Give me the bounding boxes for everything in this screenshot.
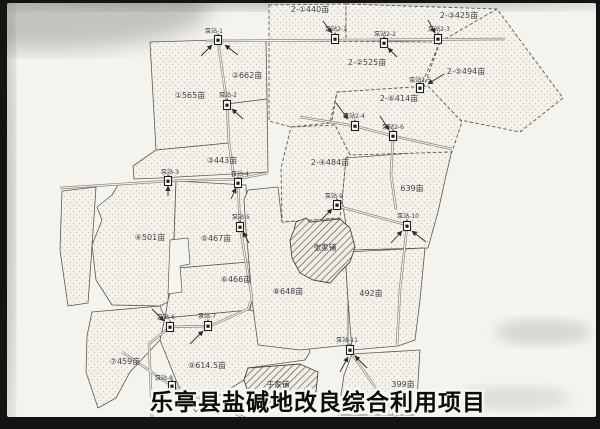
pump-station-icon: [404, 220, 411, 231]
village-label: 张家铺: [314, 242, 337, 252]
pump-station-icon: [205, 320, 212, 331]
parcel-label: ⑥466亩: [221, 274, 251, 284]
scanned-map-page: 泵站-1 泵站-2 泵站-3 泵站-4 泵站-5 泵站-6 泵站-7 泵站-8 …: [0, 0, 600, 429]
pump-label: 泵站2-5: [409, 76, 431, 84]
pump-station-icon: [334, 199, 341, 210]
pump-label: 泵站-2: [219, 91, 237, 99]
pump-label: 泵站2-3: [428, 25, 450, 33]
parcel-label: 2-③425亩: [440, 10, 478, 20]
parcel-label: 2-④484亩: [311, 157, 349, 167]
parcel-label: 2-①440亩: [291, 4, 329, 14]
parcel-label: ①565亩: [175, 90, 205, 100]
pump-station-icon: [237, 221, 244, 232]
pump-station-icon: [235, 177, 242, 188]
pump-station-icon: [224, 99, 231, 110]
page-title: 乐亭县盐碱地改良综合利用项目: [150, 389, 486, 416]
parcel-label: ⑨614.5亩: [188, 360, 226, 370]
parcel-label: 639亩: [400, 183, 423, 193]
pump-station-icon: [347, 344, 354, 355]
parcel-label: ③443亩: [207, 155, 237, 165]
parcel-label: 2-⑤494亩: [447, 66, 485, 76]
parcel-label: ②662亩: [232, 70, 262, 80]
pump-station-icon: [165, 175, 172, 186]
land-parcel-map: 泵站-1 泵站-2 泵站-3 泵站-4 泵站-5 泵站-6 泵站-7 泵站-8 …: [0, 0, 600, 429]
pump-label: 泵站-6: [157, 313, 175, 321]
parcel-label: ⑤467亩: [201, 233, 231, 243]
parcel-label: 2-②525亩: [348, 57, 386, 67]
pump-label: 泵站-9: [325, 192, 343, 200]
pump-station-icon: [390, 130, 397, 141]
parcel-label: 399亩: [391, 379, 414, 389]
pump-label: 泵站-11: [336, 336, 358, 344]
pump-label: 泵站2-1: [325, 25, 347, 33]
scan-smudge: [495, 319, 591, 345]
pump-label: 泵站-5: [232, 213, 250, 221]
pump-station-icon: [215, 34, 222, 45]
pump-label: 泵站-1: [205, 27, 223, 35]
parcel-label: ⑧648亩: [273, 286, 303, 296]
pump-station-icon: [332, 33, 339, 44]
pump-label: 泵站-10: [397, 212, 419, 220]
pump-label: 泵站-3: [161, 168, 179, 176]
pump-station-icon: [352, 120, 359, 131]
pump-label: 泵站2-2: [374, 30, 396, 38]
pump-station-icon: [435, 33, 442, 44]
parcel-shape: [345, 248, 425, 350]
parcel-label: ⑦459亩: [110, 356, 140, 366]
pump-station-icon: [167, 321, 174, 332]
pump-label: 泵站-8: [155, 374, 173, 382]
pump-label: 泵站-7: [198, 312, 216, 320]
pump-station-icon: [381, 37, 388, 48]
parcel-label: 492亩: [359, 288, 382, 298]
parcel-label: 2-⑥414亩: [380, 93, 418, 103]
pump-label: 泵站2-4: [343, 112, 365, 120]
parcel-label: ④501亩: [135, 232, 165, 242]
pump-label: 泵站-4: [231, 170, 249, 178]
pump-label: 泵站2-6: [382, 123, 404, 131]
village-label: 于家铺: [267, 379, 290, 389]
